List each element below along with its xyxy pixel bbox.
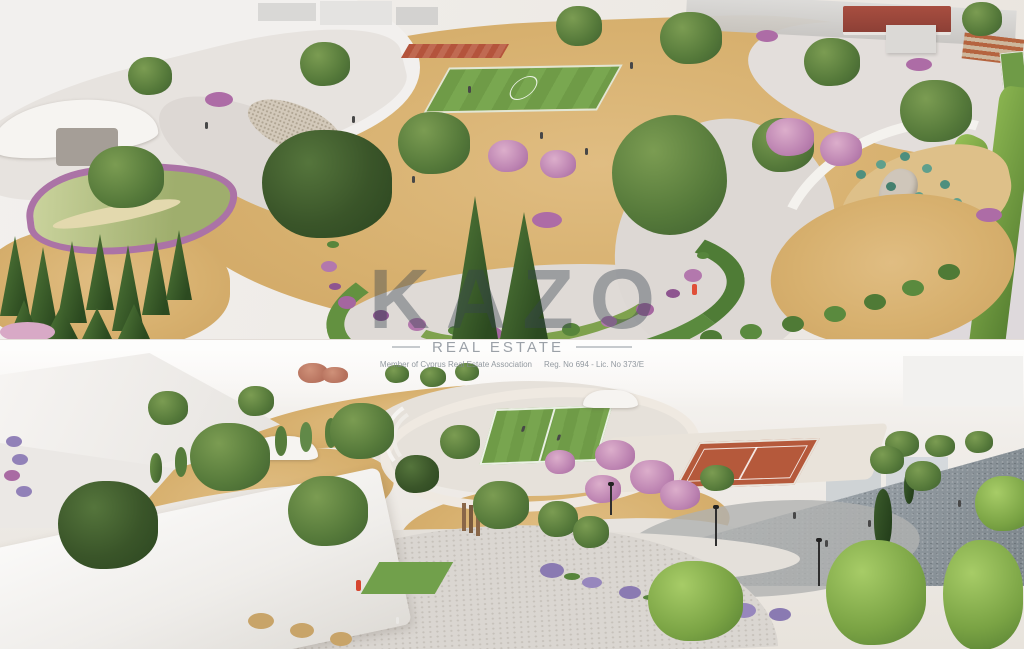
small-building [886, 25, 936, 53]
pink-flowering-tree [660, 480, 700, 510]
tree [238, 386, 274, 416]
pink-flowering-tree [585, 475, 621, 503]
cypress-row [150, 453, 162, 483]
person [793, 512, 796, 519]
person [205, 122, 208, 129]
person-red-shirt [692, 284, 697, 295]
tree [300, 42, 350, 86]
background-building [320, 1, 392, 25]
tree [900, 80, 972, 142]
cafe-table [248, 613, 274, 629]
football-pitch [423, 65, 622, 114]
player [521, 426, 526, 432]
purple-shrub [976, 208, 1002, 222]
purple-shrub [532, 212, 562, 228]
person [825, 540, 828, 547]
player [556, 434, 561, 440]
cafe-table [330, 632, 352, 646]
tree [538, 501, 578, 537]
lavender-border [6, 436, 22, 447]
tree [962, 2, 1002, 36]
pink-flowering-tree [595, 440, 635, 470]
tree [58, 481, 158, 569]
athletics-track-lanes [401, 44, 509, 58]
tree [148, 391, 188, 425]
tree [700, 465, 734, 491]
olive-tree [612, 115, 727, 235]
person [585, 148, 588, 155]
tree [395, 455, 439, 493]
person [958, 500, 961, 507]
tree [398, 112, 470, 174]
pink-flowering-tree [545, 450, 575, 474]
street-lamp [818, 541, 820, 586]
tree [573, 516, 609, 548]
person [540, 132, 543, 139]
pink-flowering-tree [766, 118, 814, 156]
pink-flowering-tree [488, 140, 528, 172]
background-building [258, 3, 316, 21]
tree [826, 540, 926, 645]
purple-shrub [756, 30, 778, 42]
tree [128, 57, 172, 95]
tree [262, 130, 392, 238]
background-building [903, 356, 1023, 406]
tree [455, 363, 479, 381]
tree [975, 476, 1024, 531]
person-red-shirt [356, 580, 361, 591]
person [352, 116, 355, 123]
person [396, 617, 399, 624]
tree [905, 461, 941, 491]
tree [925, 435, 955, 457]
tree [965, 431, 993, 453]
purple-shrub [205, 92, 233, 107]
background-building [396, 7, 438, 25]
wooden-post-sculpture [462, 503, 466, 531]
listing-photo-collage: KAZO REAL ESTATE Member of Cyprus Real E… [0, 0, 1024, 649]
tree [190, 423, 270, 491]
tree [943, 540, 1023, 649]
tree [473, 481, 529, 529]
curved-wall [583, 390, 638, 408]
parterre-tree [88, 146, 164, 208]
purple-shrub-chain [338, 296, 356, 309]
tree [420, 367, 446, 387]
tree [288, 476, 368, 546]
cactus-plants [856, 170, 866, 179]
street-lamp [715, 508, 717, 546]
tree [556, 6, 602, 46]
tree [385, 365, 409, 383]
cafe-table [290, 623, 314, 638]
tree [648, 561, 743, 641]
street-lamp [610, 485, 612, 515]
hedgerow-chain [700, 330, 722, 339]
tree [330, 403, 394, 459]
tree [660, 12, 722, 64]
top-render-panel [0, 0, 1024, 339]
person [468, 86, 471, 93]
red-foliage-tree [322, 367, 348, 383]
person [412, 176, 415, 183]
tree [804, 38, 860, 86]
pink-flowering-tree [820, 132, 862, 166]
person [868, 520, 871, 527]
pink-blossom-shrub [0, 322, 55, 339]
lavender-border [540, 563, 564, 578]
bottom-render-panel [0, 351, 1024, 649]
pink-flowering-tree [540, 150, 576, 178]
pitch-centre-circle [505, 76, 543, 100]
person [630, 62, 633, 69]
purple-shrub [906, 58, 932, 71]
tree [870, 446, 904, 474]
tree [440, 425, 480, 459]
